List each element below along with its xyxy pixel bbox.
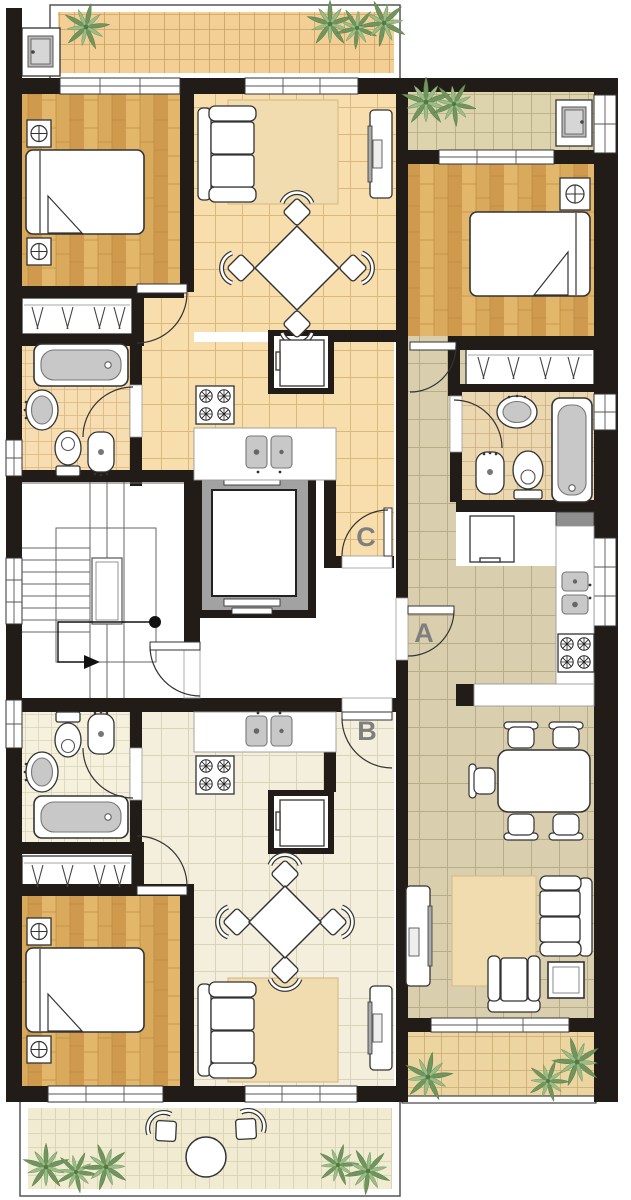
nightstand-lamp [27, 918, 51, 945]
sofa [198, 982, 256, 1078]
bidet [476, 452, 504, 494]
floor-plan: C [0, 0, 631, 1200]
window [439, 150, 554, 164]
window [245, 78, 358, 94]
bidet [88, 711, 114, 754]
stove [558, 634, 594, 672]
window [6, 700, 22, 748]
stove [196, 386, 234, 424]
hall-b-floor [142, 712, 194, 884]
double-bed [26, 948, 144, 1032]
nightstand-lamp [27, 120, 51, 147]
balcony-rail [402, 1096, 596, 1103]
utility-door [22, 28, 60, 76]
stove [196, 756, 234, 794]
hall-c-floor [142, 292, 194, 470]
window [6, 558, 22, 624]
armchair [488, 956, 540, 1012]
wardrobe-a [466, 348, 594, 386]
utility-door [556, 100, 592, 146]
kitchen-shelf [556, 512, 594, 526]
bathtub [34, 344, 128, 386]
apartment-label-c: C [356, 522, 376, 552]
window [594, 538, 616, 626]
tv-unit [406, 886, 432, 986]
refrigerator [470, 516, 514, 562]
stair-newel [92, 558, 122, 624]
elevator [194, 468, 316, 618]
window [594, 95, 616, 153]
coffee-table [548, 962, 584, 998]
elevator-cab [212, 490, 296, 596]
sofa [198, 106, 256, 202]
tv-unit [368, 986, 392, 1070]
elevator-door [224, 599, 280, 606]
double-bed [470, 212, 590, 296]
tv-unit [368, 110, 392, 198]
wardrobe-c [22, 298, 132, 334]
window [48, 1086, 163, 1102]
apartment-label-a: A [414, 618, 434, 648]
patio-table [186, 1137, 226, 1177]
toilet [55, 431, 81, 476]
nightstand-lamp [560, 178, 590, 210]
bidet [88, 432, 114, 476]
sofa [540, 876, 592, 956]
window [594, 394, 616, 430]
floor-plan-page: C [0, 0, 631, 1200]
bathtub [552, 398, 592, 502]
refrigerator [276, 340, 324, 386]
nightstand-lamp [27, 1036, 51, 1063]
bathtub [34, 796, 128, 838]
window [60, 78, 180, 94]
kitchen-island [474, 684, 594, 706]
window [6, 440, 22, 476]
refrigerator [276, 800, 324, 846]
window [431, 1018, 569, 1032]
toilet [55, 712, 81, 757]
nightstand-lamp [27, 238, 51, 265]
toilet [513, 451, 543, 499]
window [245, 1086, 357, 1102]
double-bed [26, 150, 144, 234]
